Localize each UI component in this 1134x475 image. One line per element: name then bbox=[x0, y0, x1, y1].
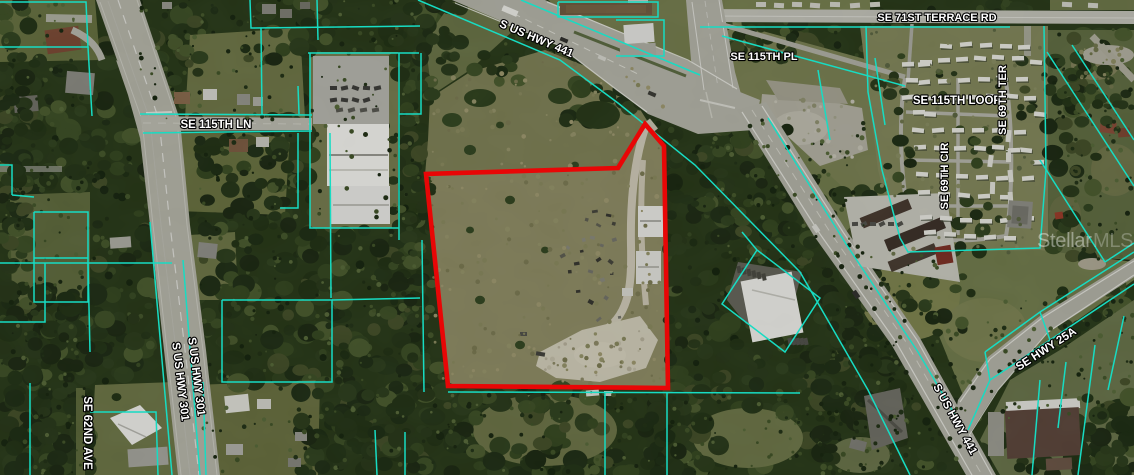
svg-text:SE 69TH TER: SE 69TH TER bbox=[997, 65, 1009, 135]
svg-text:MLS: MLS bbox=[1093, 230, 1133, 252]
svg-text:SE 71ST TERRACE RD: SE 71ST TERRACE RD bbox=[877, 12, 996, 24]
svg-text:SE 62ND AVE: SE 62ND AVE bbox=[81, 396, 93, 470]
svg-text:SE 115TH PL: SE 115TH PL bbox=[730, 51, 798, 63]
svg-text:Stellar: Stellar bbox=[1037, 230, 1092, 252]
svg-text:SE 115TH LN: SE 115TH LN bbox=[181, 119, 252, 131]
svg-text:SE 69TH CIR: SE 69TH CIR bbox=[939, 143, 951, 210]
svg-text:SE 115TH LOOP: SE 115TH LOOP bbox=[913, 95, 1002, 107]
